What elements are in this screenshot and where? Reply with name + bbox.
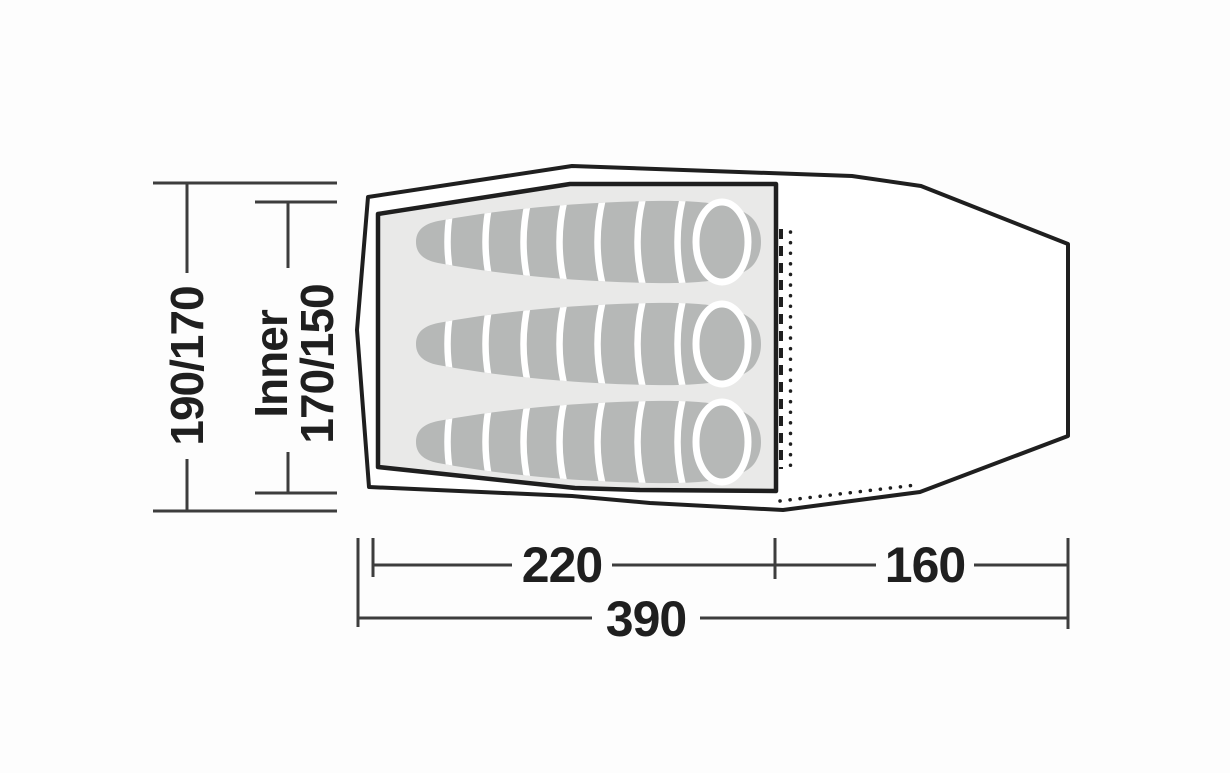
tent-floorplan-diagram: 190/170 Inner 170/150 220 160 390: [0, 0, 1230, 773]
tent-body: [357, 166, 1068, 510]
porch-length-label: 160: [885, 537, 965, 593]
tent-diagram-canvas: 190/170 Inner 170/150 220 160 390: [0, 0, 1230, 773]
inner-length-label: 220: [522, 537, 602, 593]
inner-depth-label: 170/150: [291, 284, 343, 443]
inner-depth-prefix-label: Inner: [245, 309, 297, 418]
total-length-label: 390: [606, 591, 686, 647]
flysheet-depth-label: 190/170: [161, 286, 213, 445]
